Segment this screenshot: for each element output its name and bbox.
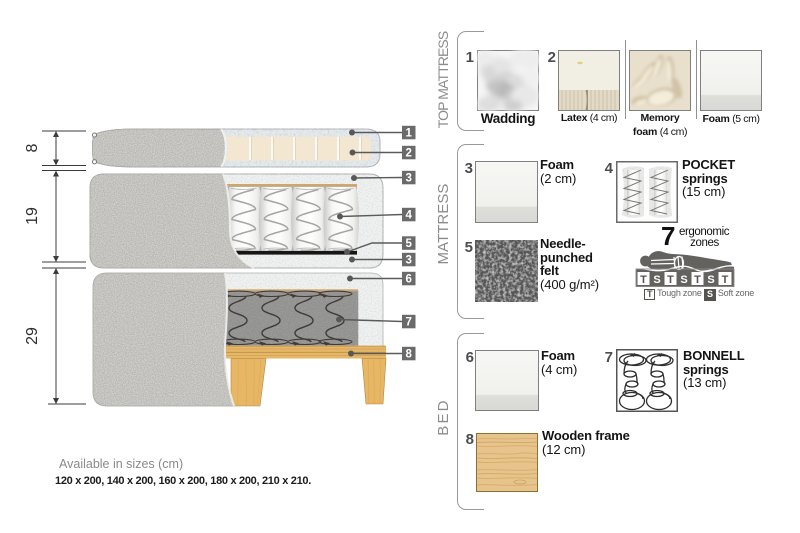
svg-text:T: T: [722, 274, 729, 286]
svg-text:S: S: [707, 274, 714, 286]
svg-text:1: 1: [405, 127, 412, 139]
svg-text:S: S: [680, 274, 687, 286]
svg-text:19: 19: [24, 207, 41, 225]
svg-text:2: 2: [405, 147, 411, 159]
svg-text:6: 6: [405, 273, 411, 285]
svg-text:3: 3: [405, 254, 411, 266]
svg-text:8: 8: [24, 143, 41, 152]
svg-text:4: 4: [405, 209, 412, 221]
svg-text:3: 3: [405, 172, 411, 184]
svg-text:8: 8: [405, 348, 412, 360]
svg-text:5: 5: [405, 238, 412, 250]
svg-text:7: 7: [405, 316, 411, 328]
svg-text:T: T: [640, 274, 647, 286]
svg-text:S: S: [653, 274, 660, 286]
svg-text:T: T: [667, 274, 674, 286]
svg-text:29: 29: [24, 327, 41, 345]
svg-text:T: T: [694, 274, 701, 286]
